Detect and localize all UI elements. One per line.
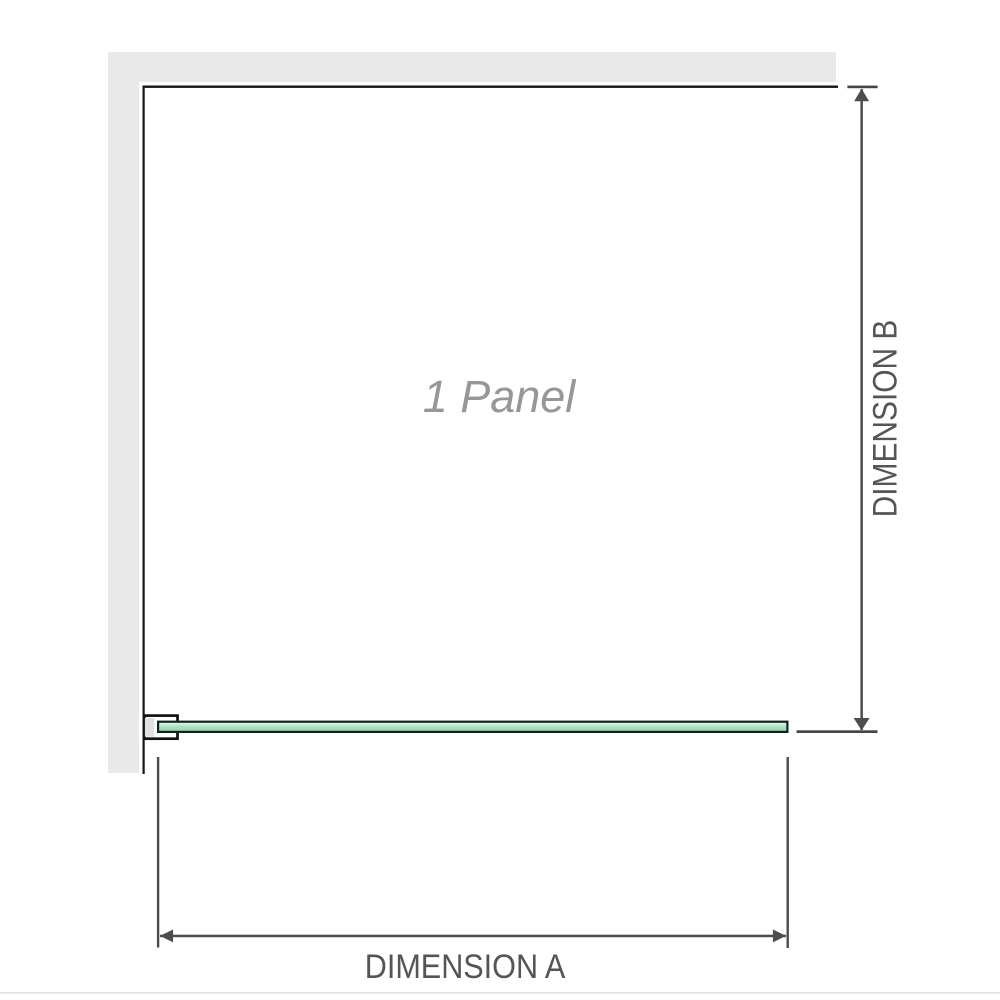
svg-text:DIMENSION A: DIMENSION A xyxy=(365,948,566,986)
svg-text:DIMENSION B: DIMENSION B xyxy=(866,320,904,518)
svg-text:1 Panel: 1 Panel xyxy=(423,371,578,422)
